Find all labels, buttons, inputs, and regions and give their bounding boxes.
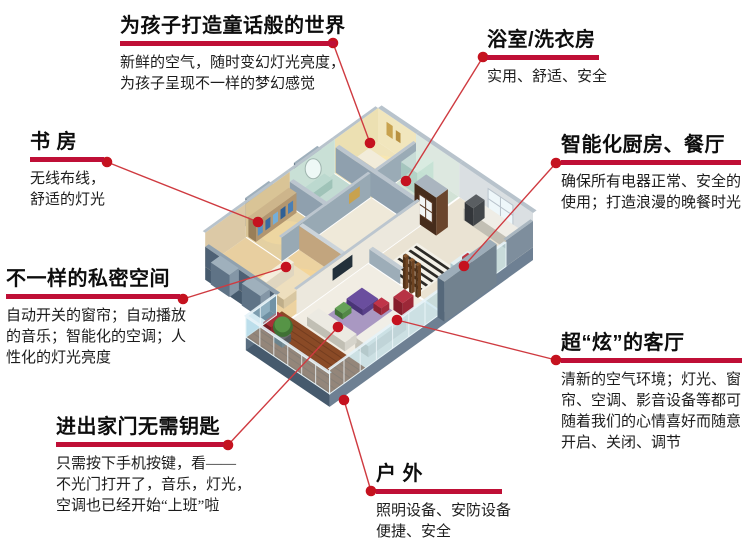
callout-body: 照明设备、安防设备 便捷、安全 — [376, 501, 511, 543]
callout-dot — [365, 138, 376, 149]
callout-dot — [551, 355, 562, 366]
callout-underline — [561, 160, 741, 165]
callout-body: 只需按下手机按键，看—— 不光门打开了，音乐，灯光， 空调也已经开始“上班”啦 — [56, 454, 251, 517]
callout-dot — [339, 395, 350, 406]
callout-line: 照明设备、安防设备 — [376, 501, 511, 522]
callout-title: 浴室/洗衣房 — [487, 28, 607, 52]
callout-body: 自动开关的窗帘；自动播放 的音乐；智能化的空调；人 性化的灯光亮度 — [6, 306, 186, 369]
callout-line: 便捷、安全 — [376, 522, 511, 543]
callout-line: 开启、关闭、调节 — [561, 433, 742, 454]
callout-dot — [401, 176, 412, 187]
callout-line: 实用、舒适、安全 — [487, 67, 607, 88]
callout-body: 无线布线， 舒适的灯光 — [30, 169, 105, 211]
callout-line: 自动开关的窗帘；自动播放 — [6, 306, 186, 327]
callout-title: 进出家门无需钥匙 — [56, 415, 251, 439]
callout-keyless-entry: 进出家门无需钥匙 只需按下手机按键，看—— 不光门打开了，音乐，灯光， 空调也已… — [56, 415, 251, 517]
callout-line: 空调也已经开始“上班”啦 — [56, 496, 251, 517]
callout-smart-kitchen-dining: 智能化厨房、餐厅 确保所有电器正常、安全的 使用；打造浪漫的晚餐时光 — [561, 133, 741, 214]
callout-underline — [376, 489, 502, 494]
callout-line: 无线布线， — [30, 169, 105, 190]
callout-underline — [120, 41, 336, 46]
callout-line: 只需按下手机按键，看—— — [56, 454, 251, 475]
smart-home-infographic: 为孩子打造童话般的世界 新鲜的空气，随时变幻灯光亮度， 为孩子呈现不一样的梦幻感… — [0, 0, 750, 553]
callout-line: 不光门打开了，音乐，灯光， — [56, 475, 251, 496]
callout-body: 新鲜的空气，随时变幻灯光亮度， 为孩子呈现不一样的梦幻感觉 — [120, 53, 346, 95]
callout-dot — [551, 158, 562, 169]
callout-dot — [333, 322, 344, 333]
callout-title: 书 房 — [30, 130, 105, 154]
house-3d-render — [203, 105, 537, 407]
callout-line: 帘、空调、影音设备等都可 — [561, 391, 742, 412]
callout-line: 确保所有电器正常、安全的 — [561, 172, 741, 193]
callout-underline — [56, 442, 224, 447]
callout-body: 清新的空气环境；灯光、窗 帘、空调、影音设备等都可 随着我们的心情喜好而随意 开… — [561, 370, 742, 454]
callout-line: 性化的灯光亮度 — [6, 348, 186, 369]
callout-underline — [30, 157, 104, 162]
callout-study-room: 书 房 无线布线， 舒适的灯光 — [30, 130, 105, 211]
callout-dot — [459, 261, 470, 272]
callout-cool-living-room: 超“炫”的客厅 清新的空气环境；灯光、窗 帘、空调、影音设备等都可 随着我们的心… — [561, 331, 742, 454]
callout-line: 舒适的灯光 — [30, 190, 105, 211]
callout-private-space: 不一样的私密空间 自动开关的窗帘；自动播放 的音乐；智能化的空调；人 性化的灯光… — [6, 267, 186, 369]
callout-title: 超“炫”的客厅 — [561, 331, 742, 355]
callout-dot — [253, 217, 264, 228]
callout-title: 户 外 — [376, 462, 511, 486]
callout-line: 随着我们的心情喜好而随意 — [561, 412, 742, 433]
callout-title: 智能化厨房、餐厅 — [561, 133, 741, 157]
callout-underline — [561, 358, 742, 363]
callout-line: 使用；打造浪漫的晚餐时光 — [561, 193, 741, 214]
leader-line — [107, 162, 258, 222]
callout-dot — [281, 262, 292, 273]
callout-outdoor: 户 外 照明设备、安防设备 便捷、安全 — [376, 462, 511, 543]
callout-dot — [366, 486, 377, 497]
callout-line: 为孩子呈现不一样的梦幻感觉 — [120, 74, 346, 95]
callout-line: 清新的空气环境；灯光、窗 — [561, 370, 742, 391]
callout-body: 实用、舒适、安全 — [487, 67, 607, 88]
callout-children-room: 为孩子打造童话般的世界 新鲜的空气，随时变幻灯光亮度， 为孩子呈现不一样的梦幻感… — [120, 14, 346, 95]
callout-line: 新鲜的空气，随时变幻灯光亮度， — [120, 53, 346, 74]
callout-title: 不一样的私密空间 — [6, 267, 186, 291]
callout-underline — [487, 55, 599, 60]
callout-body: 确保所有电器正常、安全的 使用；打造浪漫的晚餐时光 — [561, 172, 741, 214]
callout-bathroom-laundry: 浴室/洗衣房 实用、舒适、安全 — [487, 28, 607, 88]
leader-line — [344, 400, 371, 491]
callout-dot — [392, 315, 403, 326]
callout-underline — [6, 294, 180, 299]
callout-line: 的音乐；智能化的空调；人 — [6, 327, 186, 348]
callout-title: 为孩子打造童话般的世界 — [120, 14, 346, 38]
